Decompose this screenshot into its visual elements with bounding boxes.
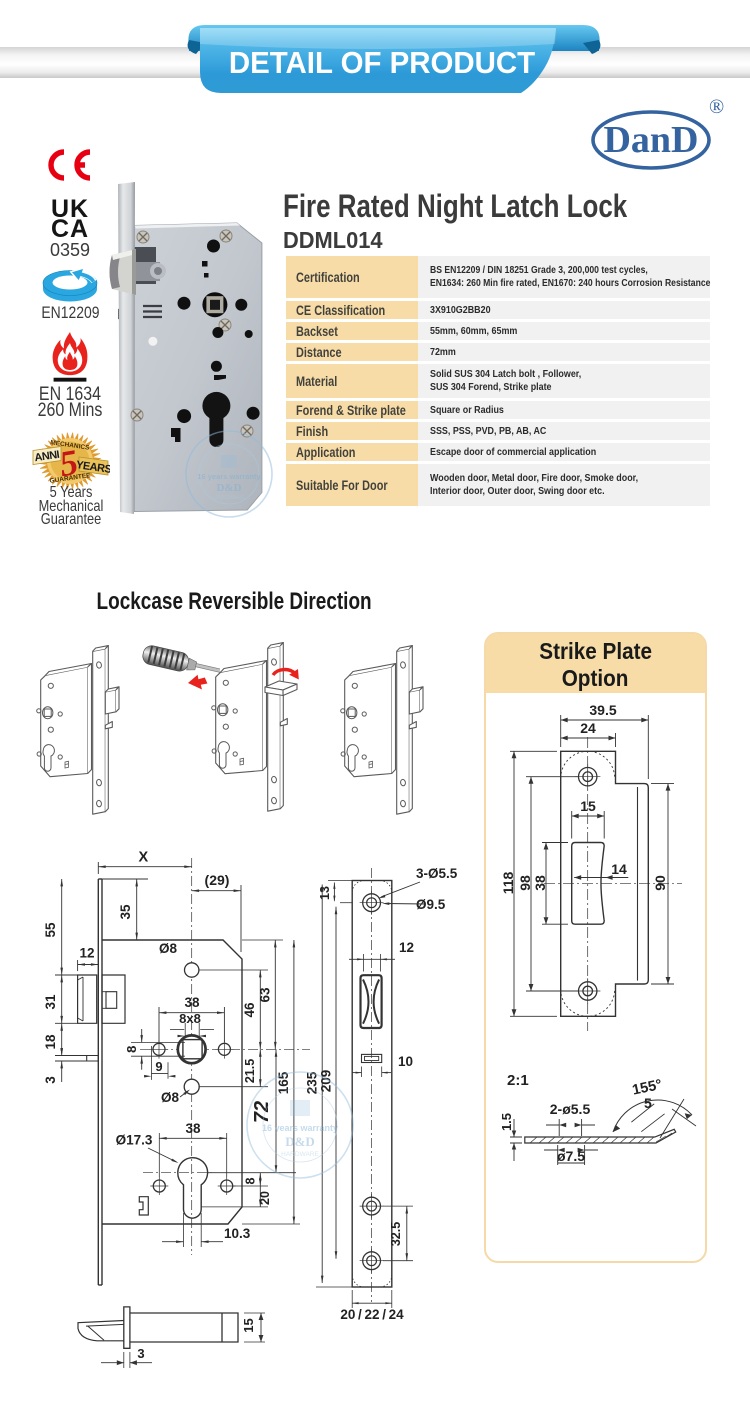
svg-text:Ø8: Ø8 bbox=[161, 1090, 180, 1105]
svg-text:20 / 22 / 24: 20 / 22 / 24 bbox=[340, 1307, 404, 1322]
svg-text:2-ø5.5: 2-ø5.5 bbox=[550, 1101, 591, 1117]
svg-text:12: 12 bbox=[79, 946, 94, 961]
svg-text:8x8: 8x8 bbox=[179, 1011, 201, 1026]
svg-text:14: 14 bbox=[611, 861, 627, 877]
svg-text:®: ® bbox=[709, 96, 724, 118]
svg-text:90: 90 bbox=[652, 875, 668, 891]
svg-text:5: 5 bbox=[644, 1095, 652, 1111]
svg-text:D&D: D&D bbox=[216, 482, 241, 494]
svg-text:3: 3 bbox=[43, 1076, 58, 1084]
svg-text:20: 20 bbox=[258, 1191, 272, 1205]
svg-text:3-Ø5.5: 3-Ø5.5 bbox=[416, 866, 458, 881]
svg-text:10.3: 10.3 bbox=[224, 1226, 251, 1241]
svg-text:13: 13 bbox=[318, 886, 332, 900]
svg-text:32.5: 32.5 bbox=[389, 1222, 403, 1246]
svg-text:16 years warranty: 16 years warranty bbox=[262, 1123, 338, 1133]
svg-text:16 years warranty: 16 years warranty bbox=[197, 472, 261, 481]
svg-text:3: 3 bbox=[137, 1346, 144, 1361]
svg-text:12: 12 bbox=[399, 940, 414, 955]
svg-text:55: 55 bbox=[43, 922, 58, 938]
svg-text:10: 10 bbox=[398, 1054, 413, 1069]
svg-text:D&D: D&D bbox=[285, 1134, 315, 1149]
svg-text:39.5: 39.5 bbox=[589, 702, 616, 718]
svg-text:(29): (29) bbox=[205, 872, 230, 888]
svg-text:Ø8: Ø8 bbox=[159, 941, 178, 956]
svg-text:ø7.5: ø7.5 bbox=[557, 1148, 585, 1164]
svg-text:15: 15 bbox=[580, 798, 596, 814]
svg-text:63: 63 bbox=[258, 987, 273, 1003]
svg-text:38: 38 bbox=[184, 995, 200, 1010]
svg-text:Ø17.3: Ø17.3 bbox=[116, 1133, 153, 1148]
svg-text:31: 31 bbox=[43, 994, 58, 1010]
svg-text:DanD: DanD bbox=[603, 119, 698, 161]
svg-text:Ø9.5: Ø9.5 bbox=[416, 897, 446, 912]
svg-text:38: 38 bbox=[532, 875, 548, 891]
svg-text:HARDWARE: HARDWARE bbox=[213, 495, 245, 501]
svg-text:35: 35 bbox=[118, 904, 133, 920]
svg-text:1.5: 1.5 bbox=[499, 1113, 514, 1131]
svg-text:18: 18 bbox=[43, 1034, 58, 1050]
svg-text:9: 9 bbox=[155, 1059, 162, 1074]
svg-text:24: 24 bbox=[580, 720, 596, 736]
svg-text:2:1: 2:1 bbox=[507, 1072, 529, 1089]
svg-text:46: 46 bbox=[242, 1002, 257, 1018]
svg-text:8: 8 bbox=[124, 1046, 139, 1053]
svg-text:15: 15 bbox=[241, 1318, 256, 1332]
svg-text:118: 118 bbox=[500, 871, 516, 894]
svg-text:98: 98 bbox=[517, 875, 533, 891]
svg-text:HARDWARE: HARDWARE bbox=[281, 1151, 319, 1158]
svg-text:38: 38 bbox=[185, 1121, 201, 1136]
svg-text:X: X bbox=[138, 850, 148, 866]
svg-text:DETAIL OF PRODUCT: DETAIL OF PRODUCT bbox=[229, 46, 536, 80]
